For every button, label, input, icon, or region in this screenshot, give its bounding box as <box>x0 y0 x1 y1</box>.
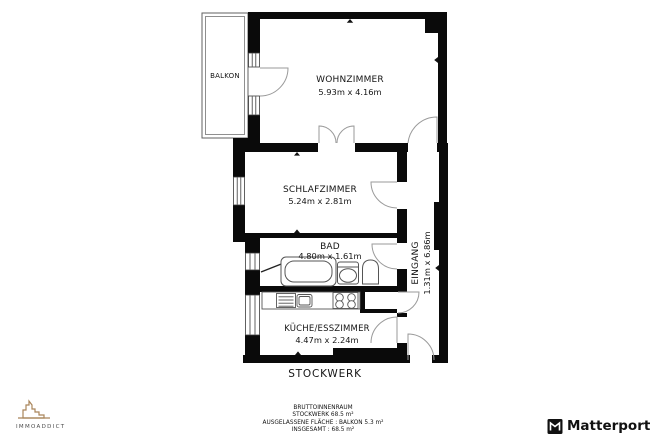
living-room-dims: 5.93m x 4.16m <box>318 87 381 97</box>
balcony-label: BALKON <box>210 72 240 80</box>
bathroom-fixtures <box>281 257 379 286</box>
summary-floor-area: STOCKWERK 68.5 m² <box>173 412 473 419</box>
kitchen-dims: 4.47m x 2.24m <box>295 335 358 345</box>
door-kitchen <box>371 317 397 343</box>
matterport-logo: Matterport <box>547 418 650 434</box>
dish-rack <box>277 294 296 308</box>
doors <box>260 68 437 360</box>
immoaddict-logo: IMMOADDICT <box>16 399 86 430</box>
living-room-label: WOHNZIMMER <box>316 75 384 85</box>
bathroom-dims: 4.80m x 1.61m <box>298 251 361 261</box>
matterport-logo-text: Matterport <box>567 418 650 434</box>
door-living-double-left <box>319 126 336 143</box>
matterport-m-icon <box>547 418 563 434</box>
area-summary: BRUTTOINNENRAUM STOCKWERK 68.5 m² AUSGEL… <box>173 405 473 434</box>
door-balcony <box>260 68 288 96</box>
floorplan-svg: BALKON WOHNZIMMER 5.93m x 4.16m SCHLAFZI… <box>0 0 650 433</box>
entrance-label: EINGANG <box>411 241 421 284</box>
summary-excluded-area: AUSGELASSENE FLÄCHE : BALKON 5.3 m² <box>173 420 473 427</box>
kitchen-label: KÜCHE/ESSZIMMER <box>284 323 370 334</box>
floorplan-page: BALKON WOHNZIMMER 5.93m x 4.16m SCHLAFZI… <box>0 0 650 433</box>
immoaddict-logo-text: IMMOADDICT <box>16 424 86 430</box>
door-living-hall <box>408 117 437 143</box>
door-closet <box>398 292 419 313</box>
bath-sink <box>363 260 379 284</box>
bedroom-dims: 5.24m x 2.81m <box>288 196 351 206</box>
door-bedroom <box>371 182 397 208</box>
bedroom-label: SCHLAFZIMMER <box>283 185 357 195</box>
door-entry <box>408 334 434 360</box>
door-living-double-right <box>337 126 354 143</box>
floor-label: STOCKWERK <box>288 368 362 380</box>
kitchen-fixtures <box>262 292 360 309</box>
immoaddict-building-icon <box>16 399 56 419</box>
entrance-dims: 1.31m x 6.86m <box>422 231 432 294</box>
